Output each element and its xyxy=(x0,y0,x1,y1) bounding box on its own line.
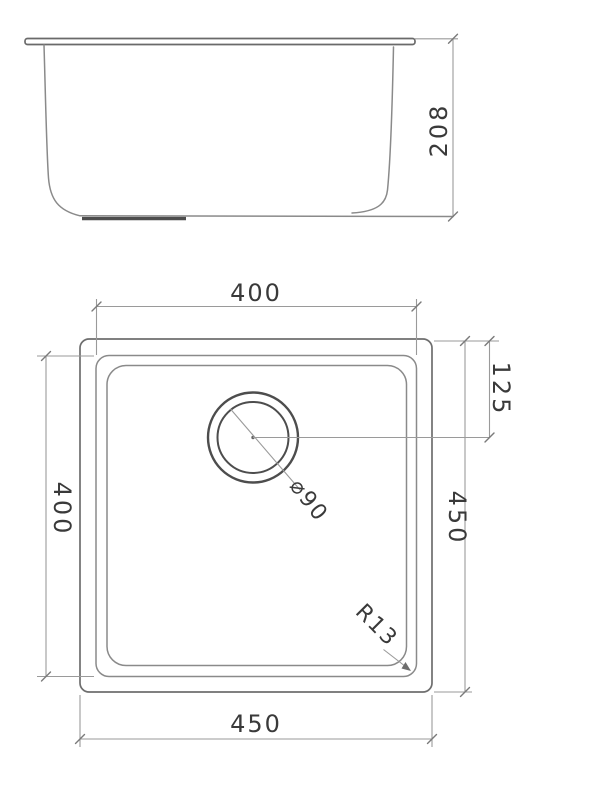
drain-diameter-leader xyxy=(231,409,302,491)
dim-label-overall-width: 450 xyxy=(230,712,282,736)
dim-label-drain-offset: 125 xyxy=(489,362,513,417)
dim-label-overall-height: 450 xyxy=(445,491,469,546)
plan-view xyxy=(37,299,499,747)
corner-radius-arrow xyxy=(402,662,412,671)
dim-label-depth: 208 xyxy=(427,103,451,158)
side-right-wall xyxy=(352,47,394,213)
dim-label-bowl-width: 400 xyxy=(230,281,282,305)
side-view xyxy=(25,34,458,221)
side-rim-flange xyxy=(25,39,415,45)
dim-label-bowl-height: 400 xyxy=(50,482,74,537)
side-left-wall xyxy=(44,45,80,216)
technical-drawing-sheet: 208 400 125 400 450 ⌀90 R13 450 xyxy=(0,0,605,800)
side-bottom-edge xyxy=(80,216,453,217)
